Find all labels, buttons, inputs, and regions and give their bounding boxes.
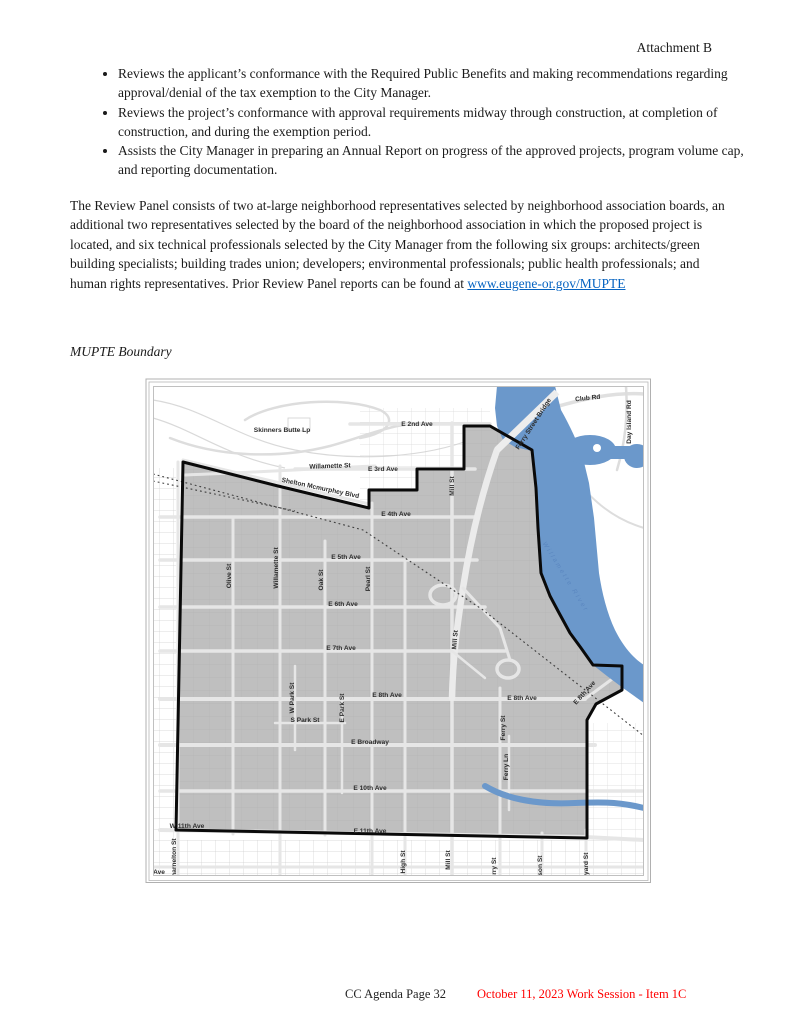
street-label: E Broadway [351,739,389,746]
bullet-text: Reviews the applicant’s conformance with… [118,66,728,100]
street-label: W Park St [289,682,296,714]
bullet-text: Assists the City Manager in preparing an… [118,143,744,177]
street-label: E 8th Ave [372,692,402,699]
street-label: Ferry Ln [503,754,510,780]
street-label: W 11th Ave [170,823,205,830]
street-label: E 11th Ave [354,828,387,835]
street-label: Mill St [449,475,456,495]
street-label: E 2nd Ave [401,421,433,428]
street-label: E Park St [339,693,346,723]
street-label: Ave [153,869,165,876]
street-label: Pearl St [365,566,372,591]
street-label: E 7th Ave [326,645,356,652]
street-label: E 8th Ave [507,695,537,702]
street-label: Olive St [226,563,233,588]
street-label: S Park St [291,717,321,724]
street-label: E 4th Ave [381,511,411,518]
street-label: E 3rd Ave [368,466,398,473]
review-panel-paragraph: The Review Panel consists of two at-larg… [70,196,732,293]
street-label: Day Island Rd [626,400,633,444]
street-label: High St [400,850,407,874]
street-label: E 10th Ave [353,785,387,792]
bullet-item: Reviews the project’s conformance with a… [118,103,766,142]
street-label: E 5th Ave [331,554,361,561]
map-heading: MUPTE Boundary [70,344,172,360]
attachment-label: Attachment B [637,40,712,56]
document-page: Attachment B Reviews the applicant’s con… [0,0,800,1035]
street-label: Mill St [445,849,452,869]
street-label: Ferry St [500,715,507,741]
map-canvas: Skinners Butte LpE 2nd AveClub RdFerry S… [145,378,652,884]
street-label: Oak St [318,569,325,591]
street-label: Skinners Butte Lp [254,427,310,434]
mupte-link[interactable]: www.eugene-or.gov/MUPTE [467,276,625,291]
bullet-item: Assists the City Manager in preparing an… [118,141,766,180]
footer-page-number: CC Agenda Page 32 [345,987,446,1002]
duties-bullet-list: Reviews the applicant’s conformance with… [70,64,766,180]
street-label: E 6th Ave [328,601,358,608]
review-panel-text: The Review Panel consists of two at-larg… [70,198,725,291]
bullet-item: Reviews the applicant’s conformance with… [118,64,766,103]
footer-session-label: October 11, 2023 Work Session - Item 1C [477,987,686,1002]
bullet-text: Reviews the project’s conformance with a… [118,105,717,139]
street-label: Willamette St [309,462,351,470]
mupte-boundary-map: Skinners Butte LpE 2nd AveClub RdFerry S… [145,378,652,884]
street-label: Willamette St [273,547,280,589]
